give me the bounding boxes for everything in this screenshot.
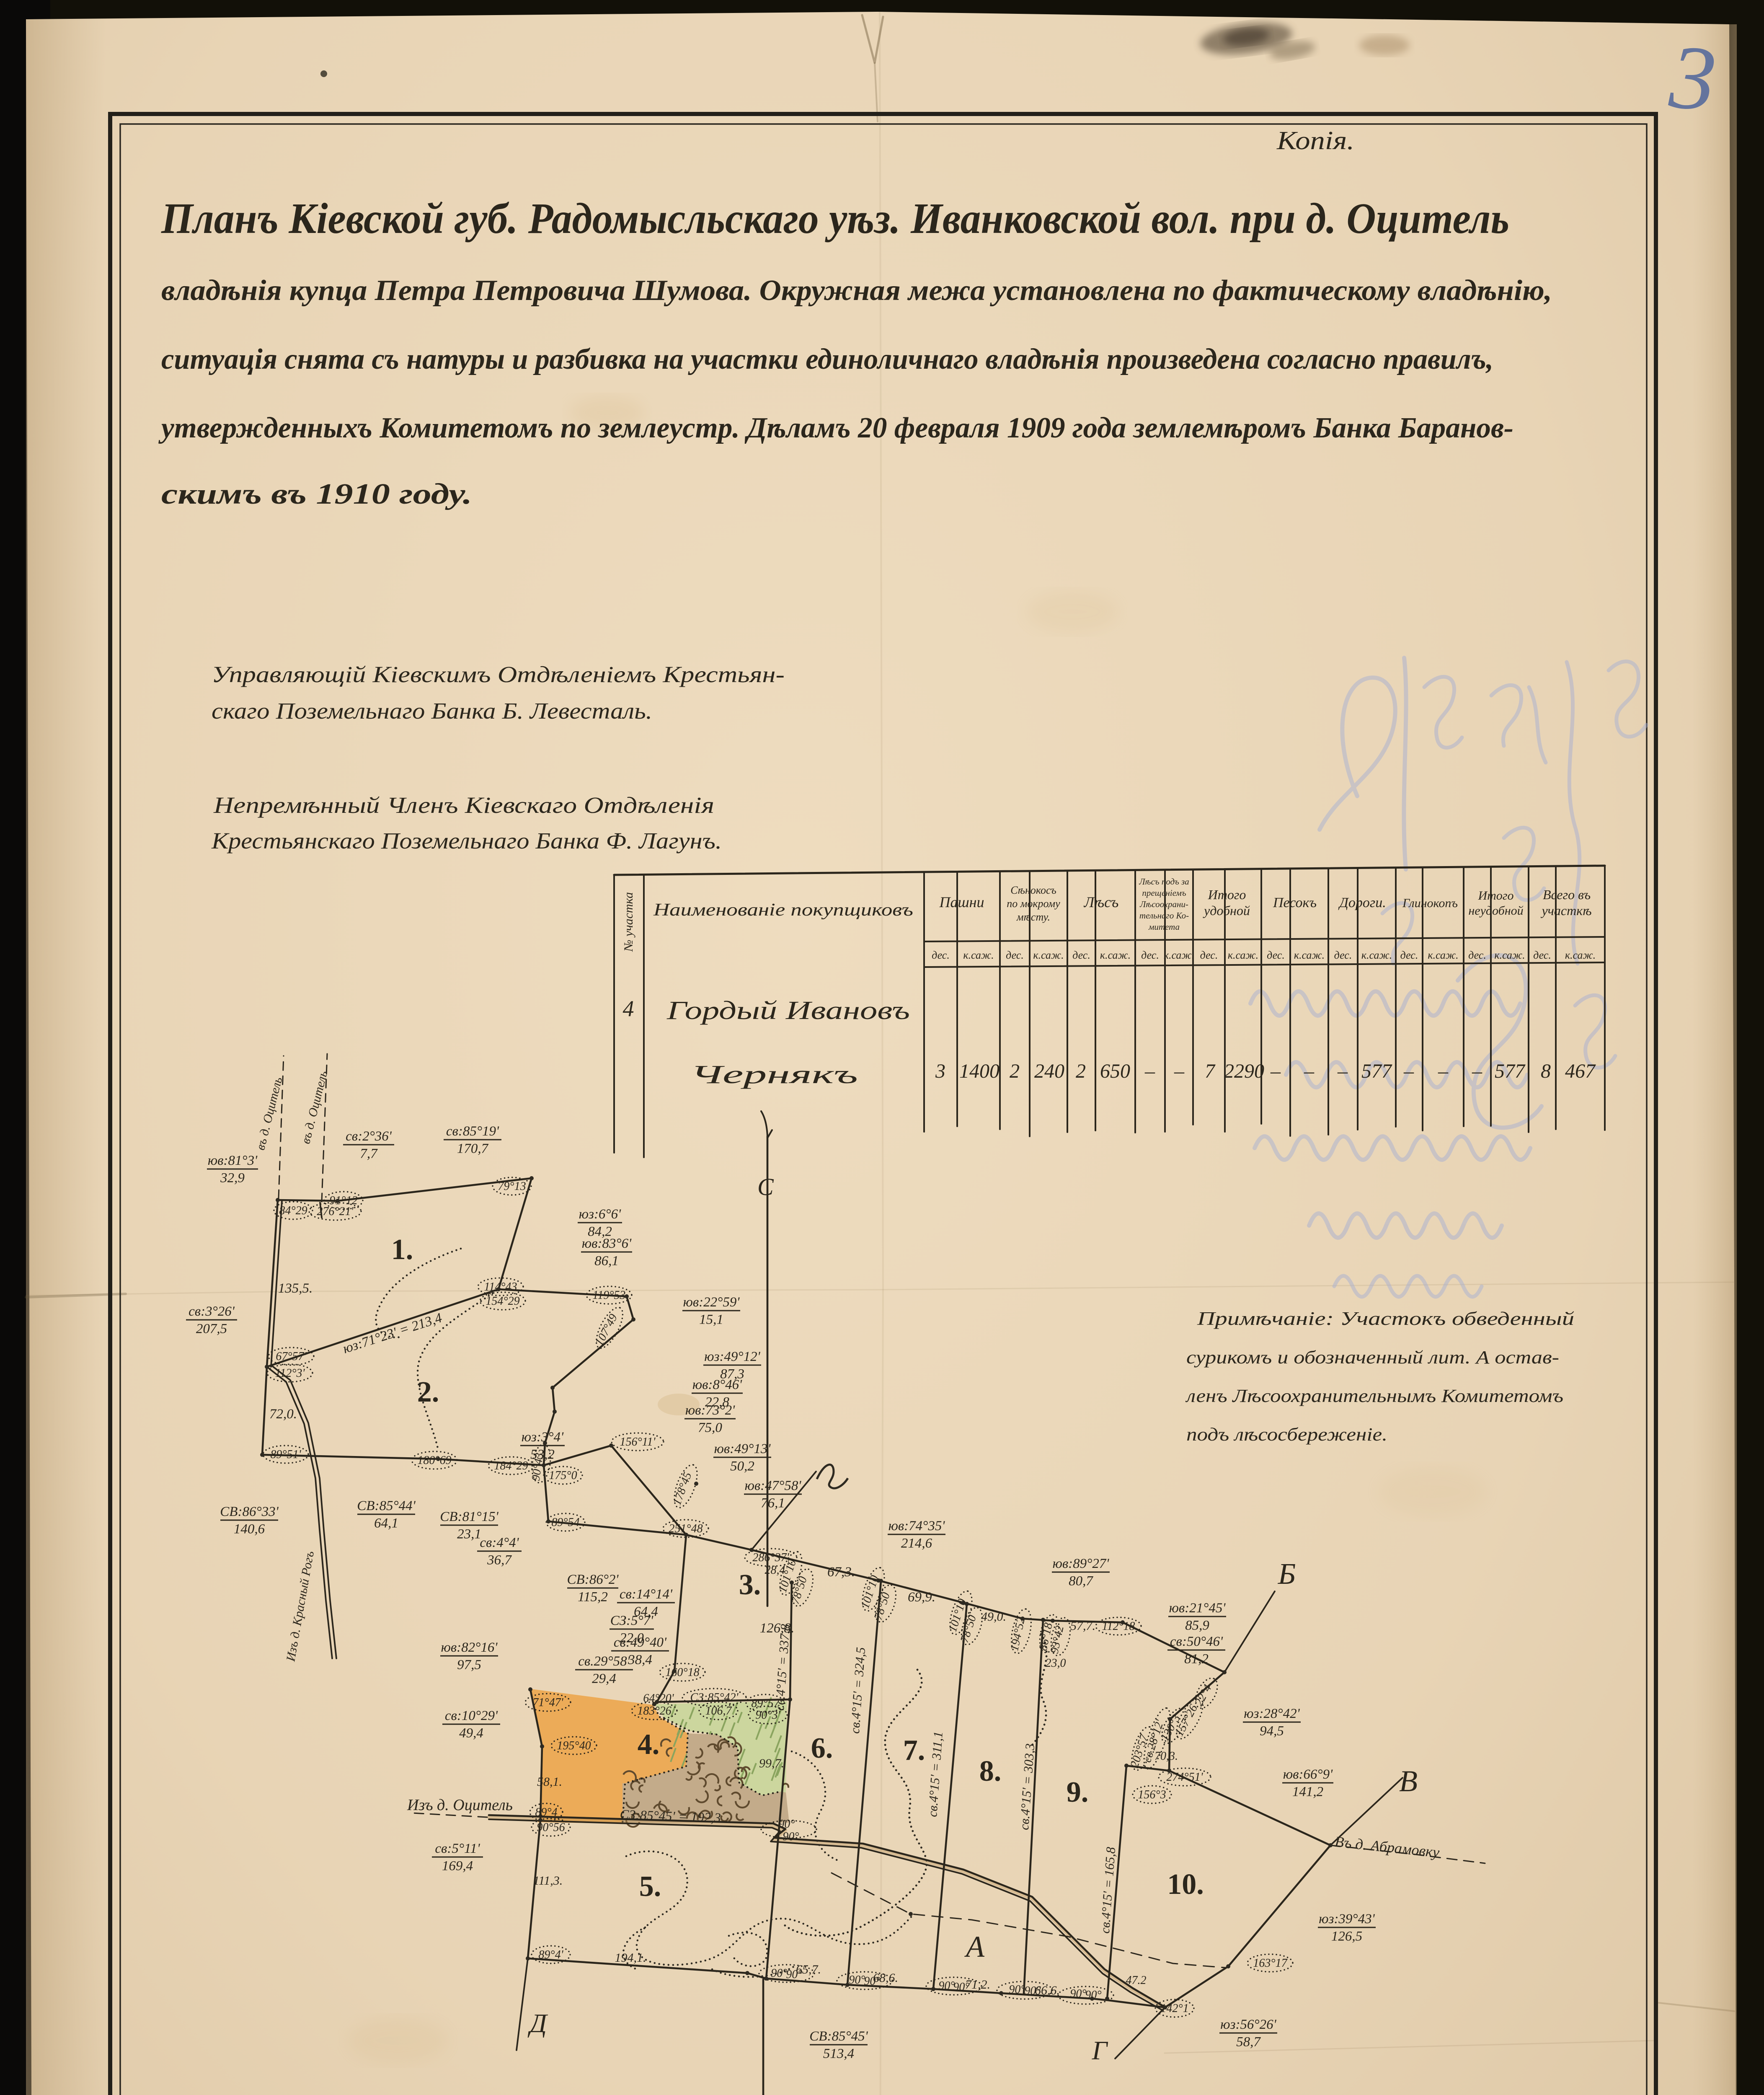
svg-text:195°40: 195°40 <box>557 1739 591 1752</box>
svg-text:дес.: дес. <box>1072 949 1090 961</box>
svg-text:юв:47°58': юв:47°58' <box>745 1478 802 1493</box>
svg-text:неудобной: неудобной <box>1468 904 1523 918</box>
svg-text:юв:81°3': юв:81°3' <box>208 1153 258 1168</box>
svg-text:мѣсту.: мѣсту. <box>1016 911 1050 923</box>
svg-text:к.саж.: к.саж. <box>1565 949 1596 961</box>
svg-text:577: 577 <box>1361 1060 1392 1082</box>
svg-text:286°37': 286°37' <box>752 1551 789 1564</box>
svg-text:80,7: 80,7 <box>1069 1573 1093 1588</box>
svg-text:214,6: 214,6 <box>901 1536 932 1551</box>
svg-text:–: – <box>1174 1060 1185 1082</box>
svg-text:дес.: дес. <box>1006 949 1024 961</box>
svg-text:Планъ Кіевской губ. Радомысльс: Планъ Кіевской губ. Радомысльскаго уѣз. … <box>161 194 1509 243</box>
svg-text:св:14°14': св:14°14' <box>620 1587 673 1602</box>
svg-text:90°56: 90°56 <box>537 1821 565 1834</box>
svg-text:св:5°11': св:5°11' <box>435 1841 480 1856</box>
svg-text:Лѣсъ: Лѣсъ <box>1084 894 1119 910</box>
svg-text:юв:49°13': юв:49°13' <box>714 1441 771 1456</box>
svg-text:71°47': 71°47' <box>532 1696 563 1709</box>
svg-text:90°: 90° <box>1009 1983 1025 1996</box>
svg-text:св.29°58': св.29°58' <box>578 1654 630 1669</box>
svg-text:–: – <box>1304 1060 1315 1082</box>
svg-text:св:10°29': св:10°29' <box>445 1708 498 1723</box>
svg-text:4: 4 <box>623 996 634 1021</box>
svg-text:8.: 8. <box>979 1755 1002 1787</box>
svg-text:89°4': 89°4' <box>538 1948 563 1961</box>
svg-text:Крестьянскаго Поземельнаго Бан: Крестьянскаго Поземельнаго Банка Ф. Лагу… <box>211 828 722 854</box>
svg-text:к.саж.: к.саж. <box>1164 949 1194 961</box>
svg-text:29,4: 29,4 <box>592 1671 616 1686</box>
svg-text:49,0.: 49,0. <box>981 1610 1006 1624</box>
svg-text:47.2: 47.2 <box>1126 1974 1147 1987</box>
svg-text:–: – <box>1438 1060 1449 1082</box>
svg-text:юв:73°2': юв:73°2' <box>685 1403 735 1418</box>
svg-text:119°53: 119°53 <box>592 1289 625 1302</box>
svg-text:15,1: 15,1 <box>699 1312 723 1327</box>
svg-text:прещеніемъ: прещеніемъ <box>1142 888 1186 898</box>
svg-text:дес.: дес. <box>1533 949 1551 961</box>
svg-text:4.: 4. <box>638 1728 660 1761</box>
svg-text:юв:89°27': юв:89°27' <box>1053 1556 1110 1571</box>
svg-text:юз:49°12': юз:49°12' <box>704 1349 760 1364</box>
svg-text:юз:3°4': юз:3°4' <box>522 1430 564 1445</box>
svg-text:90°: 90° <box>849 1973 865 1986</box>
svg-text:участкѣ: участкѣ <box>1540 903 1591 918</box>
svg-text:юв:83°6': юв:83°6' <box>582 1236 632 1251</box>
svg-text:Итого: Итого <box>1477 889 1513 903</box>
svg-text:6.: 6. <box>811 1732 833 1764</box>
svg-text:скимъ въ 1910 году.: скимъ въ 1910 году. <box>161 478 472 510</box>
svg-text:160°18: 160°18 <box>665 1666 699 1679</box>
svg-text:дес.: дес. <box>1200 949 1218 961</box>
svg-text:СВ:85°44': СВ:85°44' <box>357 1498 416 1513</box>
svg-text:юз:39°43': юз:39°43' <box>1319 1911 1375 1927</box>
svg-text:Управляющій Кіевскимъ Отдѣлені: Управляющій Кіевскимъ Отдѣленіемъ Кресть… <box>212 662 785 687</box>
svg-text:577: 577 <box>1495 1060 1526 1082</box>
svg-text:10.: 10. <box>1167 1868 1204 1901</box>
svg-text:183°26: 183°26 <box>637 1704 671 1717</box>
svg-text:97,5: 97,5 <box>457 1657 481 1672</box>
svg-text:76,1: 76,1 <box>761 1495 785 1510</box>
svg-text:СВ:86°33': СВ:86°33' <box>220 1504 279 1519</box>
svg-text:156°11': 156°11' <box>620 1435 656 1448</box>
svg-text:св:50°46': св:50°46' <box>1170 1634 1223 1649</box>
svg-text:утвержденныхъ Комитетомъ по зе: утвержденныхъ Комитетомъ по землеустр. Д… <box>158 412 1513 444</box>
svg-text:141,2: 141,2 <box>1292 1784 1323 1799</box>
svg-text:Лѣсоохрани-: Лѣсоохрани- <box>1139 899 1188 909</box>
svg-text:дес.: дес. <box>1267 949 1285 961</box>
svg-text:Дороги.: Дороги. <box>1338 895 1386 910</box>
svg-text:св:3°26': св:3°26' <box>189 1304 235 1319</box>
svg-text:156°3: 156°3 <box>1138 1788 1166 1801</box>
svg-text:юз:56°26': юз:56°26' <box>1220 2017 1276 2032</box>
svg-text:7: 7 <box>1205 1060 1216 1082</box>
svg-text:владѣнія купца Петра Петровича: владѣнія купца Петра Петровича Шумова. О… <box>161 274 1552 307</box>
svg-text:дес.: дес. <box>1468 949 1486 961</box>
svg-text:276°21': 276°21' <box>317 1205 354 1218</box>
svg-text:89°54: 89°54 <box>551 1516 579 1529</box>
svg-text:св:2°36': св:2°36' <box>346 1129 392 1144</box>
svg-text:–: – <box>1472 1060 1482 1082</box>
svg-text:юв:21°45': юв:21°45' <box>1169 1601 1226 1616</box>
svg-text:к.саж.: к.саж. <box>1294 949 1325 961</box>
svg-text:–: – <box>1144 1060 1155 1082</box>
svg-text:23,0: 23,0 <box>1046 1657 1066 1670</box>
svg-text:7,7: 7,7 <box>360 1146 378 1161</box>
svg-text:240: 240 <box>1034 1060 1064 1082</box>
svg-text:72,0.: 72,0. <box>269 1407 297 1422</box>
svg-text:Б: Б <box>1278 1557 1296 1591</box>
svg-text:дес.: дес. <box>932 949 950 961</box>
svg-text:90°: 90° <box>771 1967 787 1980</box>
svg-text:112°3': 112°3' <box>275 1367 305 1380</box>
svg-text:ленъ Лѣсоохранительнымъ Комите: ленъ Лѣсоохранительнымъ Комитетомъ <box>1185 1386 1563 1406</box>
svg-text:Наименованіе покупщиковъ: Наименованіе покупщиковъ <box>653 900 913 920</box>
svg-text:115,2: 115,2 <box>578 1589 608 1604</box>
svg-text:90°: 90° <box>778 1818 795 1831</box>
svg-text:СВ:86°2': СВ:86°2' <box>567 1572 619 1587</box>
svg-text:175°0: 175°0 <box>549 1469 577 1482</box>
svg-text:111,3.: 111,3. <box>533 1874 563 1888</box>
svg-text:163°17: 163°17 <box>1253 1957 1287 1970</box>
svg-text:юв:82°16': юв:82°16' <box>441 1640 498 1655</box>
svg-text:Песокъ: Песокъ <box>1273 895 1317 910</box>
svg-text:184°29: 184°29 <box>494 1459 528 1472</box>
svg-text:90°: 90° <box>953 1981 969 1994</box>
svg-text:57,7.: 57,7. <box>1070 1619 1095 1633</box>
svg-text:Копія.: Копія. <box>1276 127 1354 155</box>
svg-text:89°51': 89°51' <box>270 1448 301 1461</box>
svg-text:Чернякъ: Чернякъ <box>690 1060 858 1089</box>
svg-text:69,9.: 69,9. <box>908 1590 935 1605</box>
svg-text:90°: 90° <box>864 1975 880 1988</box>
svg-text:58,7: 58,7 <box>1236 2034 1261 2049</box>
svg-text:32,9: 32,9 <box>220 1170 245 1185</box>
svg-text:–: – <box>1403 1060 1414 1082</box>
svg-text:8: 8 <box>1541 1060 1551 1082</box>
svg-text:49,4: 49,4 <box>459 1725 483 1741</box>
svg-text:митета: митета <box>1148 922 1180 932</box>
svg-text:154°29: 154°29 <box>486 1295 519 1308</box>
svg-text:90°3': 90°3' <box>755 1709 780 1722</box>
svg-text:84°29: 84°29 <box>279 1204 307 1217</box>
svg-text:к.саж.: к.саж. <box>1494 949 1525 961</box>
svg-text:юз:28°42': юз:28°42' <box>1244 1706 1300 1721</box>
svg-text:ситуація снята съ натуры и раз: ситуація снята съ натуры и разбивка на у… <box>161 343 1493 375</box>
svg-text:513,4: 513,4 <box>823 2046 854 2061</box>
svg-text:94,5: 94,5 <box>1260 1723 1284 1738</box>
svg-text:90°: 90° <box>783 1830 799 1843</box>
svg-text:А: А <box>964 1930 985 1963</box>
svg-text:81,2: 81,2 <box>1184 1651 1209 1666</box>
svg-text:85,9: 85,9 <box>1185 1618 1209 1633</box>
svg-text:169,4: 169,4 <box>442 1858 473 1873</box>
svg-text:274°51': 274°51' <box>1166 1771 1203 1784</box>
svg-text:70,3.: 70,3. <box>1154 1750 1178 1763</box>
svg-text:дес.: дес. <box>1334 949 1352 961</box>
svg-text:2.: 2. <box>417 1376 439 1408</box>
svg-text:180°69: 180°69 <box>417 1454 451 1467</box>
svg-text:к.саж.: к.саж. <box>1428 949 1458 961</box>
svg-text:Непремѣнный Членъ Кіевскаго От: Непремѣнный Членъ Кіевскаго Отдѣленія <box>213 792 714 818</box>
svg-text:Д: Д <box>528 2008 548 2038</box>
svg-text:к.саж.: к.саж. <box>963 949 994 961</box>
svg-text:–: – <box>1270 1060 1281 1082</box>
svg-text:юв:66°9': юв:66°9' <box>1283 1767 1333 1782</box>
svg-text:к.саж.: к.саж. <box>1100 949 1131 961</box>
svg-text:СВ:81°15': СВ:81°15' <box>440 1509 498 1524</box>
svg-text:38,4: 38,4 <box>628 1652 652 1667</box>
svg-text:1.: 1. <box>391 1234 413 1266</box>
svg-text:112°18: 112°18 <box>1102 1620 1135 1633</box>
svg-text:№ участка: № участка <box>622 892 635 952</box>
svg-text:Пашни: Пашни <box>939 894 984 910</box>
svg-text:1400: 1400 <box>959 1060 1000 1082</box>
svg-text:Гордый Ивановъ: Гордый Ивановъ <box>666 996 910 1025</box>
svg-text:90°: 90° <box>938 1979 955 1992</box>
svg-text:194,1.: 194,1. <box>615 1951 646 1965</box>
svg-text:64,1: 64,1 <box>374 1516 398 1531</box>
svg-text:Изъ д. Оцитель: Изъ д. Оцитель <box>407 1796 513 1814</box>
svg-text:650: 650 <box>1100 1060 1130 1082</box>
svg-text:126,5: 126,5 <box>1331 1929 1362 1944</box>
svg-text:90°: 90° <box>1070 1987 1086 2000</box>
svg-text:В: В <box>1399 1764 1418 1798</box>
svg-text:67°57': 67°57' <box>276 1350 307 1363</box>
svg-text:135,5.: 135,5. <box>278 1281 313 1296</box>
svg-text:св:4°4': св:4°4' <box>480 1535 519 1550</box>
svg-text:79°13: 79°13 <box>498 1180 526 1193</box>
svg-text:Итого: Итого <box>1208 887 1246 902</box>
svg-text:удобной: удобной <box>1203 903 1250 918</box>
svg-text:89°57: 89°57 <box>751 1697 780 1710</box>
svg-text:к.саж.: к.саж. <box>1361 949 1392 961</box>
svg-text:2290: 2290 <box>1224 1060 1264 1082</box>
svg-text:Лѣсъ подъ за: Лѣсъ подъ за <box>1139 877 1189 887</box>
svg-text:90°: 90° <box>1024 1984 1041 1997</box>
svg-text:Сѣнокосъ: Сѣнокосъ <box>1010 884 1056 896</box>
svg-text:86,1: 86,1 <box>594 1253 619 1268</box>
svg-text:Г: Г <box>1092 2036 1108 2065</box>
svg-text:дес.: дес. <box>1141 949 1159 961</box>
svg-text:3.: 3. <box>739 1569 761 1601</box>
svg-text:2: 2 <box>1010 1060 1020 1082</box>
svg-text:106,7: 106,7 <box>705 1704 732 1717</box>
svg-text:170,7: 170,7 <box>457 1141 489 1156</box>
svg-text:юз:6°6': юз:6°6' <box>579 1207 621 1222</box>
svg-text:467: 467 <box>1565 1060 1596 1082</box>
svg-text:58,1.: 58,1. <box>537 1775 562 1789</box>
svg-text:юв:74°35': юв:74°35' <box>888 1518 945 1534</box>
svg-text:7.: 7. <box>903 1734 925 1767</box>
svg-text:–: – <box>1337 1060 1348 1082</box>
svg-text:Глинокопъ: Глинокопъ <box>1402 896 1458 910</box>
svg-text:к.саж.: к.саж. <box>1228 949 1258 961</box>
svg-text:св:85°19': св:85°19' <box>446 1124 499 1139</box>
svg-text:9.: 9. <box>1067 1776 1089 1808</box>
svg-text:подъ лѣсосбереженіе.: подъ лѣсосбереженіе. <box>1186 1424 1387 1445</box>
svg-text:90°: 90° <box>786 1968 802 1981</box>
svg-text:к.саж.: к.саж. <box>1033 949 1064 961</box>
svg-text:юв:8°46': юв:8°46' <box>692 1377 742 1392</box>
svg-text:юв:22°59': юв:22°59' <box>683 1295 740 1310</box>
svg-text:207,5: 207,5 <box>196 1321 227 1336</box>
svg-text:5.: 5. <box>639 1870 661 1903</box>
svg-text:скаго Поземельнаго Банка Б. Ле: скаго Поземельнаго Банка Б. Левесталь. <box>212 698 652 724</box>
svg-text:3: 3 <box>1666 26 1720 130</box>
svg-text:по мокрому: по мокрому <box>1007 897 1060 910</box>
svg-text:50,2: 50,2 <box>730 1459 754 1474</box>
svg-text:дес.: дес. <box>1400 949 1418 961</box>
svg-text:Всего въ: Всего въ <box>1543 887 1591 902</box>
svg-text:СЗ:5°7': СЗ:5°7' <box>610 1613 654 1628</box>
svg-text:67,3.: 67,3. <box>827 1565 855 1580</box>
svg-text:Примѣчаніе: Участокъ обведенны: Примѣчаніе: Участокъ обведенный <box>1197 1308 1574 1329</box>
svg-text:140,6: 140,6 <box>234 1521 265 1536</box>
svg-text:СВ:85°45': СВ:85°45' <box>809 2029 868 2044</box>
svg-text:С: С <box>757 1173 774 1200</box>
svg-text:75,0: 75,0 <box>698 1420 722 1435</box>
svg-text:3: 3 <box>935 1060 945 1082</box>
svg-text:64°20': 64°20' <box>643 1692 674 1705</box>
svg-text:36,7: 36,7 <box>487 1552 512 1567</box>
svg-text:23,1: 23,1 <box>457 1526 481 1542</box>
svg-text:сурикомъ и обозначенный лит. А: сурикомъ и обозначенный лит. А остав- <box>1186 1347 1559 1368</box>
svg-text:99,7.: 99,7. <box>759 1756 784 1770</box>
svg-text:св:49°40': св:49°40' <box>614 1635 667 1650</box>
svg-text:89°4: 89°4 <box>535 1806 557 1819</box>
svg-text:114°43: 114°43 <box>484 1280 517 1293</box>
svg-text:тельнаго Ко-: тельнаго Ко- <box>1139 910 1189 921</box>
svg-text:2: 2 <box>1076 1060 1086 1082</box>
